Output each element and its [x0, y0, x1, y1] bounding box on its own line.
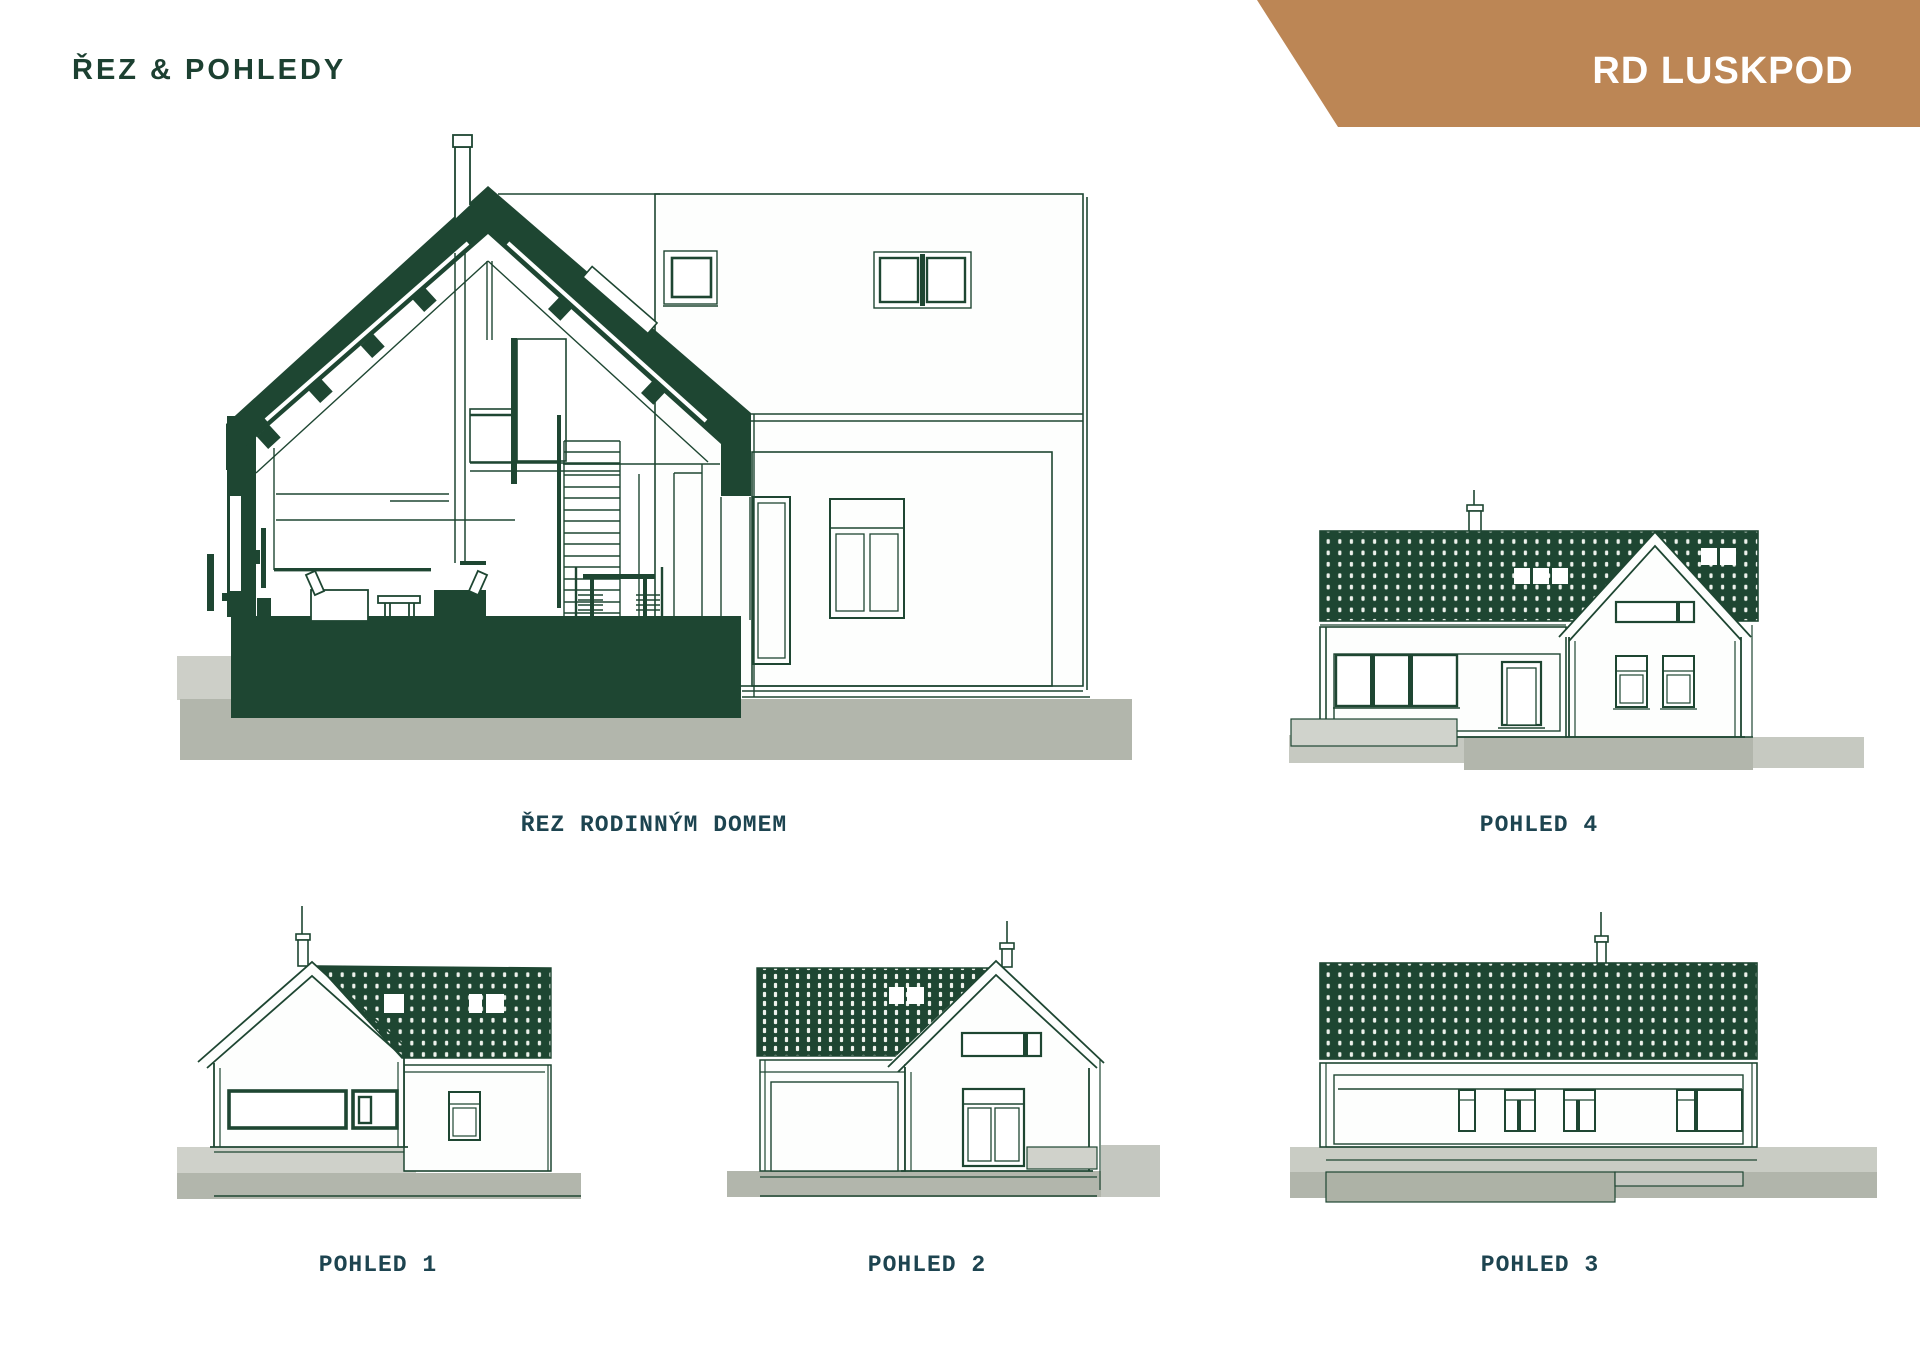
svg-text:ŘEZ & POHLEDY: ŘEZ & POHLEDY: [72, 52, 346, 86]
svg-text:POHLED 3: POHLED 3: [1481, 1252, 1599, 1278]
svg-text:POHLED 1: POHLED 1: [319, 1252, 437, 1278]
svg-text:POHLED 2: POHLED 2: [868, 1252, 986, 1278]
svg-text:ŘEZ RODINNÝM DOMEM: ŘEZ RODINNÝM DOMEM: [521, 810, 787, 838]
svg-text:POHLED 4: POHLED 4: [1480, 812, 1598, 838]
svg-text:RD LUSKPOD: RD LUSKPOD: [1592, 50, 1853, 92]
